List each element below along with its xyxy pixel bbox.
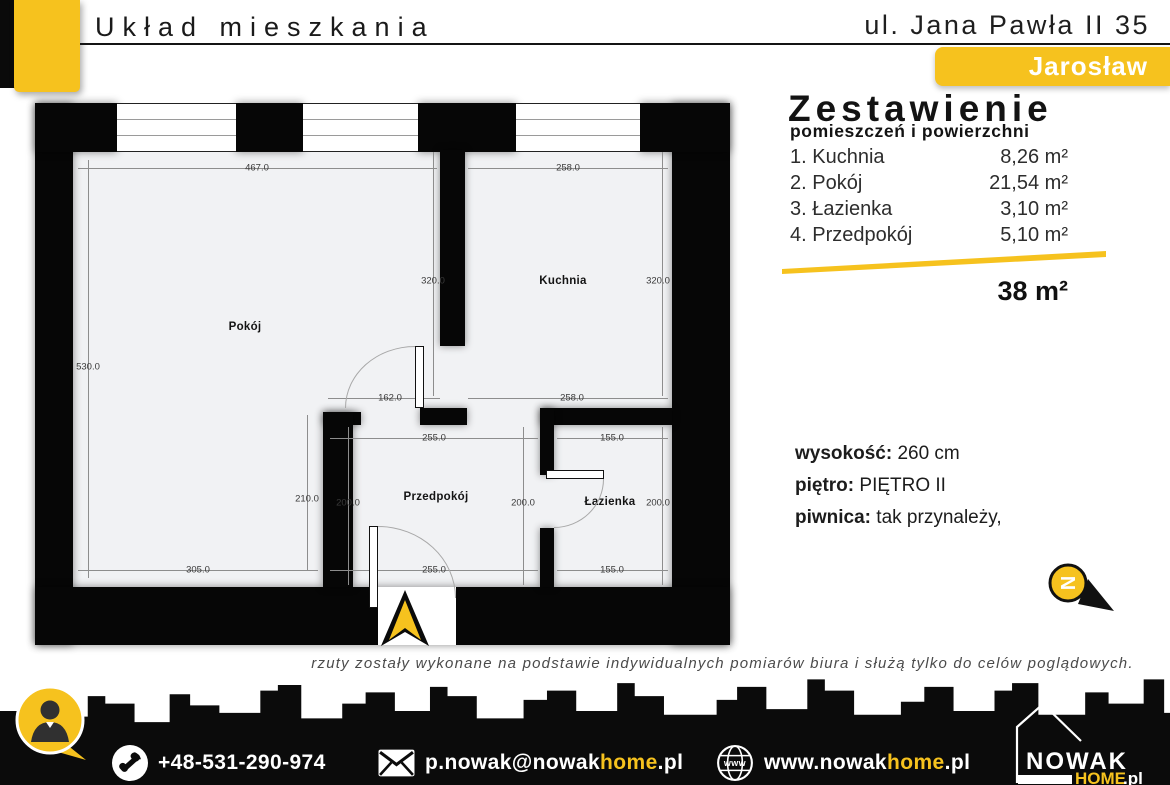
dimension-label: 155.0 bbox=[600, 433, 624, 444]
dimension-label: 467.0 bbox=[245, 163, 269, 174]
phone-icon bbox=[112, 745, 148, 781]
dimension-label: 210.0 bbox=[295, 494, 319, 505]
website-address: www.nowakhome.pl bbox=[764, 751, 970, 775]
header-yellow-square bbox=[14, 0, 80, 92]
address-title: ul. Jana Pawła II 35 bbox=[864, 10, 1150, 41]
dimension-label: 200.0 bbox=[511, 498, 535, 509]
window bbox=[303, 103, 418, 152]
basement-row: piwnica: tak przynależy, bbox=[795, 502, 1002, 534]
floor-label: piętro: bbox=[795, 475, 854, 496]
wall-lazienka-stub-bottom bbox=[540, 528, 554, 587]
room-name: 3. Łazienka bbox=[790, 198, 892, 224]
list-item: 3. Łazienka 3,10 m² bbox=[790, 198, 1068, 224]
phone-number: +48-531-290-974 bbox=[158, 751, 326, 775]
header-underline bbox=[80, 43, 1170, 45]
dimension-label: 530.0 bbox=[76, 362, 100, 373]
wall-foot bbox=[420, 408, 467, 425]
room-label-pokoj: Pokój bbox=[229, 321, 262, 333]
room-area: 8,26 m² bbox=[1000, 146, 1068, 172]
north-compass-icon: N bbox=[1040, 555, 1125, 625]
wall-lazienka-stub-top bbox=[540, 408, 554, 475]
list-item: 4. Przedpokój 5,10 m² bbox=[790, 224, 1068, 250]
envelope-icon bbox=[378, 749, 415, 777]
window bbox=[516, 103, 640, 152]
wall-top-segment bbox=[35, 103, 117, 152]
room-name: 4. Przedpokój bbox=[790, 224, 912, 250]
phone-contact[interactable]: +48-531-290-974 bbox=[112, 740, 326, 785]
height-row: wysokość: 260 cm bbox=[795, 438, 1002, 470]
compass-letter: N bbox=[1056, 576, 1078, 590]
globe-www-label: www bbox=[723, 758, 746, 768]
floor-row: piętro: PIĘTRO II bbox=[795, 470, 1002, 502]
wall-top-segment bbox=[418, 103, 516, 152]
summary-subtitle: pomieszczeń i powierzchni bbox=[790, 121, 1030, 142]
dimension-label: 258.0 bbox=[556, 163, 580, 174]
room-area: 21,54 m² bbox=[989, 172, 1068, 198]
window bbox=[117, 103, 236, 152]
yellow-divider-swoosh bbox=[780, 248, 1110, 276]
wall-kuchnia-bottom bbox=[540, 408, 672, 425]
globe-icon: www bbox=[716, 744, 754, 782]
email-address: p.nowak@nowakhome.pl bbox=[425, 751, 683, 775]
wall-pokoj-kuchnia bbox=[440, 150, 465, 346]
disclaimer-text: rzuty zostały wykonane na podstawie indy… bbox=[300, 655, 1145, 672]
dimension-label: 200.0 bbox=[646, 498, 670, 509]
room-name: 2. Pokój bbox=[790, 172, 862, 198]
agent-avatar bbox=[14, 684, 94, 764]
wall-left bbox=[35, 103, 73, 645]
room-label-przedpokoj: Przedpokój bbox=[404, 491, 469, 503]
list-item: 1. Kuchnia 8,26 m² bbox=[790, 146, 1068, 172]
email-contact[interactable]: p.nowak@nowakhome.pl bbox=[378, 740, 683, 785]
dimension-line bbox=[662, 152, 663, 396]
height-value: 260 cm bbox=[897, 443, 959, 464]
room-name: 1. Kuchnia bbox=[790, 146, 885, 172]
total-area: 38 m² bbox=[790, 276, 1068, 307]
property-details: wysokość: 260 cm piętro: PIĘTRO II piwni… bbox=[795, 438, 1002, 534]
dimension-line bbox=[433, 152, 434, 396]
wall-right bbox=[672, 103, 730, 645]
height-label: wysokość: bbox=[795, 443, 892, 464]
dimension-label: 320.0 bbox=[646, 276, 670, 287]
page-title: Układ mieszkania bbox=[95, 12, 435, 43]
logo-tld: .pl bbox=[1123, 769, 1143, 785]
city-badge-label: Jarosław bbox=[1029, 47, 1148, 86]
dimension-label: 320.0 bbox=[421, 276, 445, 287]
person-icon bbox=[41, 701, 60, 720]
room-area: 3,10 m² bbox=[1000, 198, 1068, 224]
basement-value: tak przynależy, bbox=[876, 507, 1001, 528]
logo-home: HOME bbox=[1075, 769, 1126, 785]
dimension-label: 200.0 bbox=[336, 498, 360, 509]
bathroom-door-leaf bbox=[546, 470, 604, 479]
room-area-list: 1. Kuchnia 8,26 m² 2. Pokój 21,54 m² 3. … bbox=[790, 146, 1068, 250]
dimension-label: 258.0 bbox=[560, 393, 584, 404]
dimension-label: 305.0 bbox=[186, 565, 210, 576]
door-leaf bbox=[415, 346, 424, 408]
website-contact[interactable]: www www.nowakhome.pl bbox=[716, 740, 970, 785]
room-label-kuchnia: Kuchnia bbox=[539, 275, 586, 287]
wall-top-segment bbox=[640, 103, 730, 152]
dimension-line bbox=[307, 415, 308, 570]
dimension-label: 255.0 bbox=[422, 433, 446, 444]
basement-label: piwnica: bbox=[795, 507, 871, 528]
entrance-arrow-icon bbox=[378, 588, 432, 650]
dimension-label: 155.0 bbox=[600, 565, 624, 576]
floor-value: PIĘTRO II bbox=[859, 475, 946, 496]
city-badge: Jarosław bbox=[935, 47, 1170, 86]
list-item: 2. Pokój 21,54 m² bbox=[790, 172, 1068, 198]
city-skyline bbox=[0, 672, 1170, 737]
company-logo[interactable]: NOWAK HOME .pl bbox=[1005, 695, 1170, 785]
room-area: 5,10 m² bbox=[1000, 224, 1068, 250]
entrance-door-leaf bbox=[369, 526, 378, 608]
wall-top-segment bbox=[236, 103, 303, 152]
